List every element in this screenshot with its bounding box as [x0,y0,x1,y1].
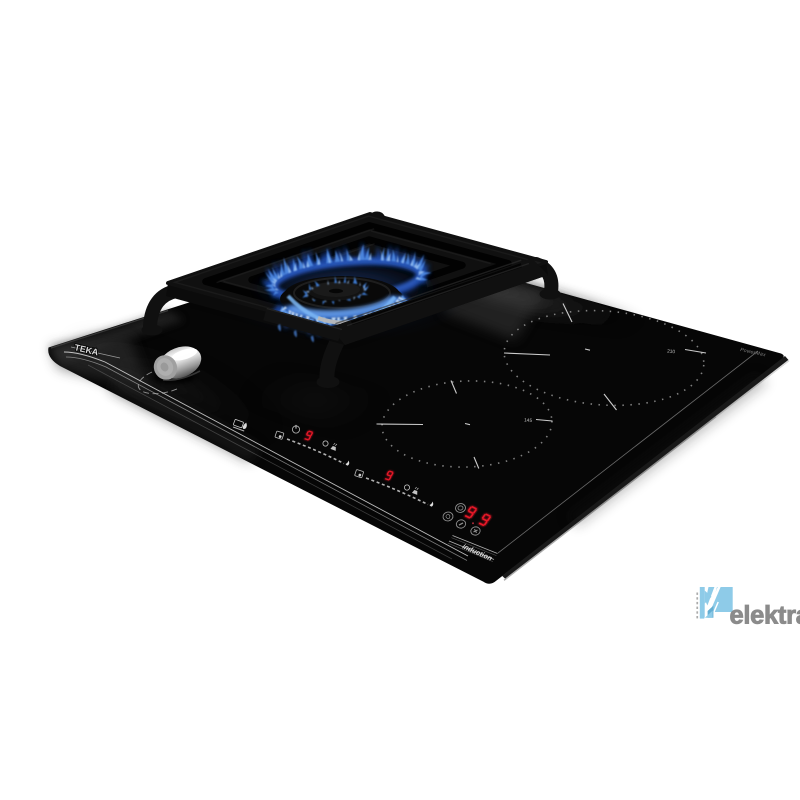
svg-text:elektra: elektra [730,602,800,630]
svg-text:145: 145 [524,418,533,425]
svg-text:210: 210 [667,349,676,356]
